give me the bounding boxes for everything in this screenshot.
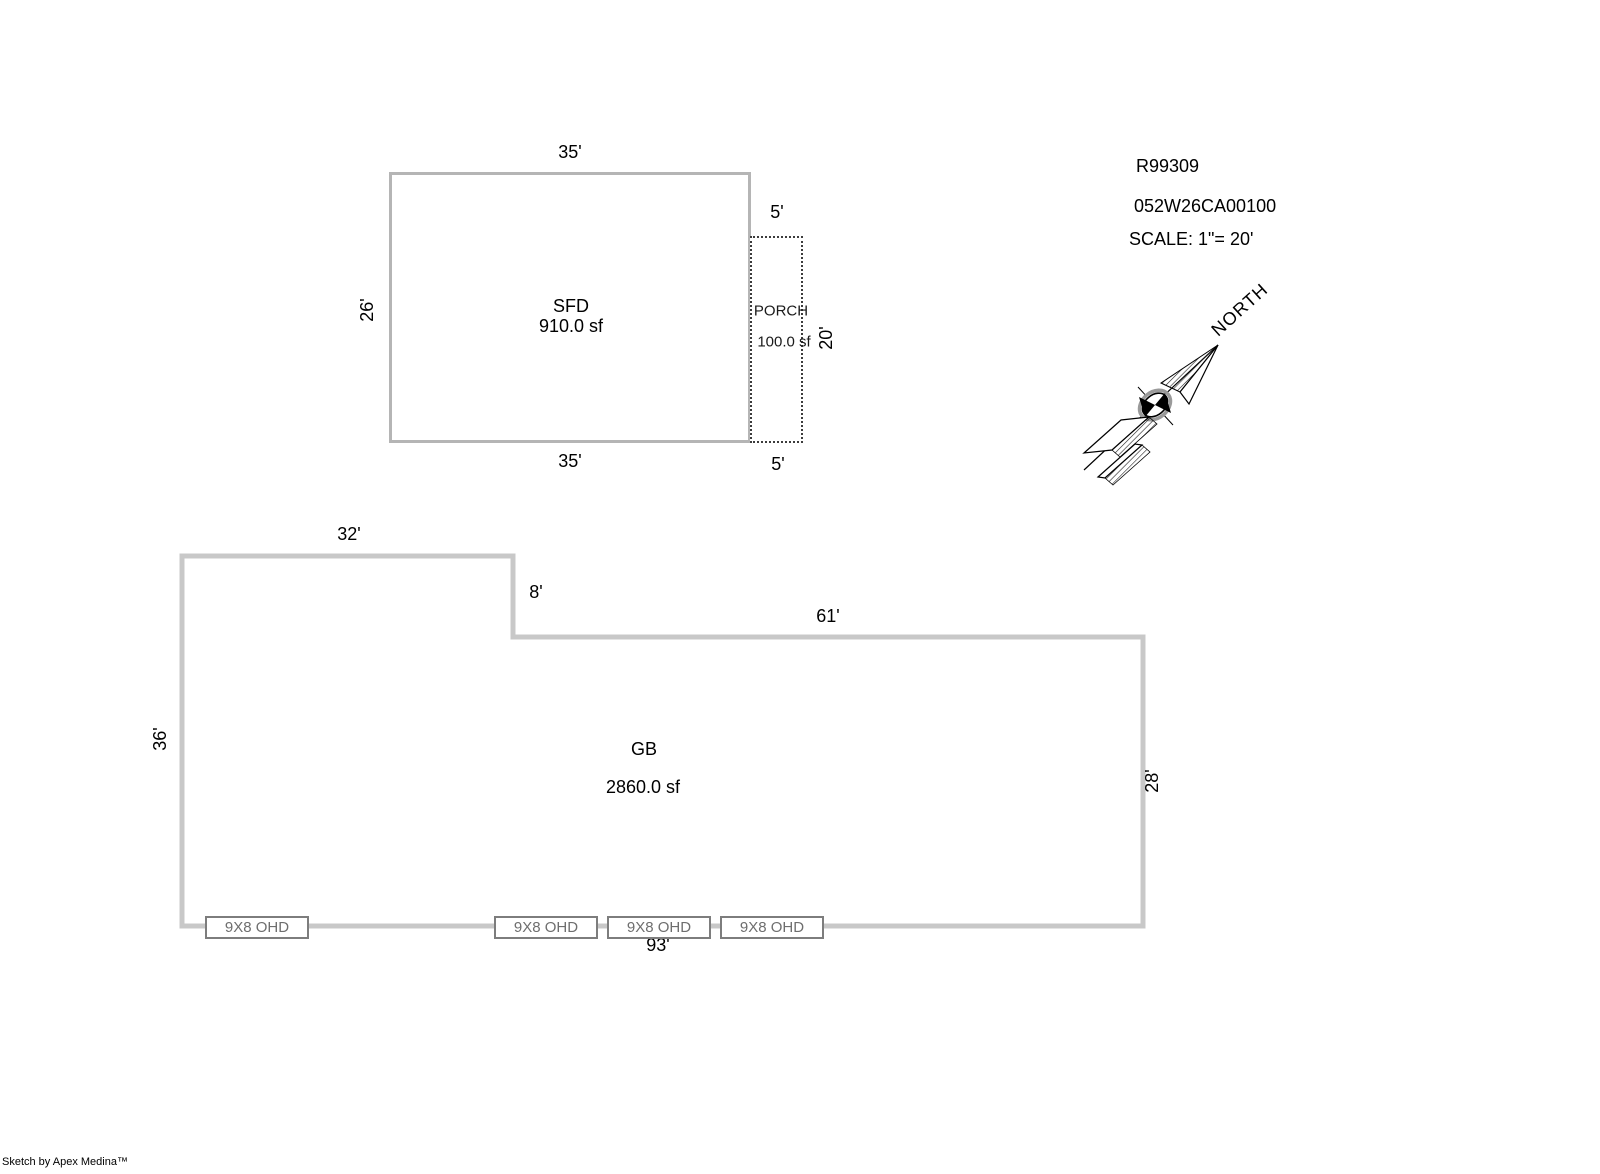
overhead-door-callout: 9X8 OHD — [205, 916, 309, 939]
porch-name-label: PORCH — [754, 304, 808, 319]
gb-top-right-dimension: 61' — [816, 607, 839, 625]
record-id: R99309 — [1136, 156, 1199, 177]
gb-step-dimension: 8' — [529, 583, 542, 601]
sfd-area-label: 910.0 sf — [539, 317, 603, 335]
gb-outline-layer — [0, 0, 1600, 1174]
porch-top-dimension: 5' — [770, 203, 783, 221]
sfd-top-dimension: 35' — [558, 143, 581, 161]
sketch-credit: Sketch by Apex Medina™ — [2, 1156, 128, 1168]
gb-area-label: 2860.0 sf — [606, 778, 680, 796]
gb-left-dimension: 36' — [151, 727, 169, 750]
gb-outline — [182, 556, 1143, 926]
overhead-door-callout: 9X8 OHD — [720, 916, 824, 939]
gb-name-label: GB — [631, 740, 657, 758]
parcel-id: 052W26CA00100 — [1134, 196, 1276, 217]
sfd-left-dimension: 26' — [358, 298, 376, 321]
sketch-canvas: 35' 26' 35' SFD 910.0 sf 5' 20' 5' PORCH… — [0, 0, 1600, 1174]
gb-top-left-dimension: 32' — [337, 525, 360, 543]
scale-label: SCALE: 1"= 20' — [1129, 229, 1253, 250]
porch-right-dimension: 20' — [817, 326, 835, 349]
sfd-name-label: SFD — [553, 297, 589, 315]
overhead-door-callout: 9X8 OHD — [607, 916, 711, 939]
overhead-door-callout: 9X8 OHD — [494, 916, 598, 939]
porch-bottom-dimension: 5' — [771, 455, 784, 473]
sfd-bottom-dimension: 35' — [558, 452, 581, 470]
gb-right-dimension: 28' — [1143, 769, 1161, 792]
porch-area-label: 100.0 sf — [757, 335, 810, 350]
